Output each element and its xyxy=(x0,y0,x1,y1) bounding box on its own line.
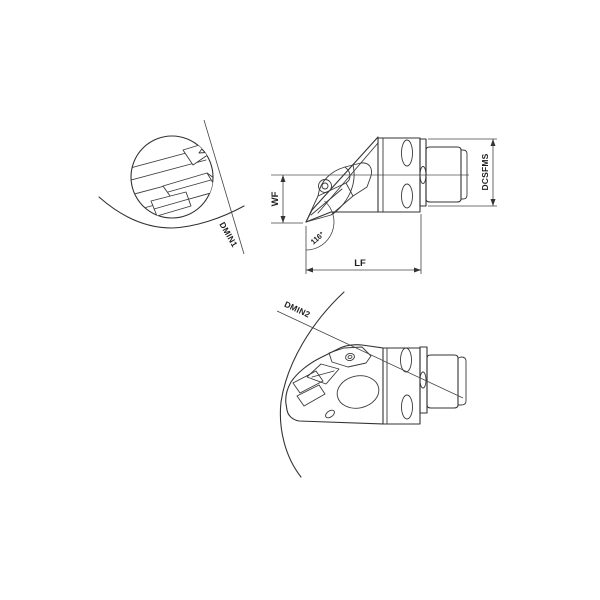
wf-label: WF xyxy=(270,191,281,206)
coupling-flange xyxy=(420,139,426,206)
iso-facet-lower xyxy=(297,385,325,406)
clamp-detail xyxy=(183,143,212,165)
coolant-slot-bottom xyxy=(402,184,413,208)
iso-coolant-slot-top xyxy=(401,348,412,372)
iso-view-dmin2: DMIN2 xyxy=(277,292,466,477)
technical-drawing-canvas: DMIN1 xyxy=(0,0,600,600)
iso-coupling-shank xyxy=(420,347,466,413)
dcsfms-dimension: DCSFMS xyxy=(428,139,497,206)
iso-clamp-screw xyxy=(345,352,356,361)
angle-dimension: 116° xyxy=(306,201,334,250)
cutting-insert xyxy=(306,183,353,222)
iso-head-boss xyxy=(334,372,382,412)
iso-small-hole xyxy=(324,409,336,420)
wf-dimension: WF xyxy=(270,175,303,223)
shank-cylinder xyxy=(426,147,461,202)
iso-shank-cylinder xyxy=(427,355,458,408)
coolant-slot-top xyxy=(402,140,413,166)
tool-head xyxy=(306,137,378,222)
iso-tool-body xyxy=(383,348,420,424)
shank-end-cap xyxy=(461,150,467,199)
detail-tip-geometry xyxy=(119,143,228,216)
lf-label: LF xyxy=(354,258,366,269)
dmin2-label: DMIN2 xyxy=(283,299,312,320)
side-view: 116° WF LF DCSFMS xyxy=(270,137,497,274)
coupling-shank xyxy=(420,139,467,206)
detail-view-dmin1: DMIN1 xyxy=(99,120,244,254)
dcsfms-label: DCSFMS xyxy=(480,153,490,190)
drawing-page: DMIN1 xyxy=(0,0,600,600)
iso-coolant-slot-bottom xyxy=(402,395,413,419)
dmin1-label: DMIN1 xyxy=(217,220,239,249)
iso-tool-head xyxy=(286,345,383,424)
